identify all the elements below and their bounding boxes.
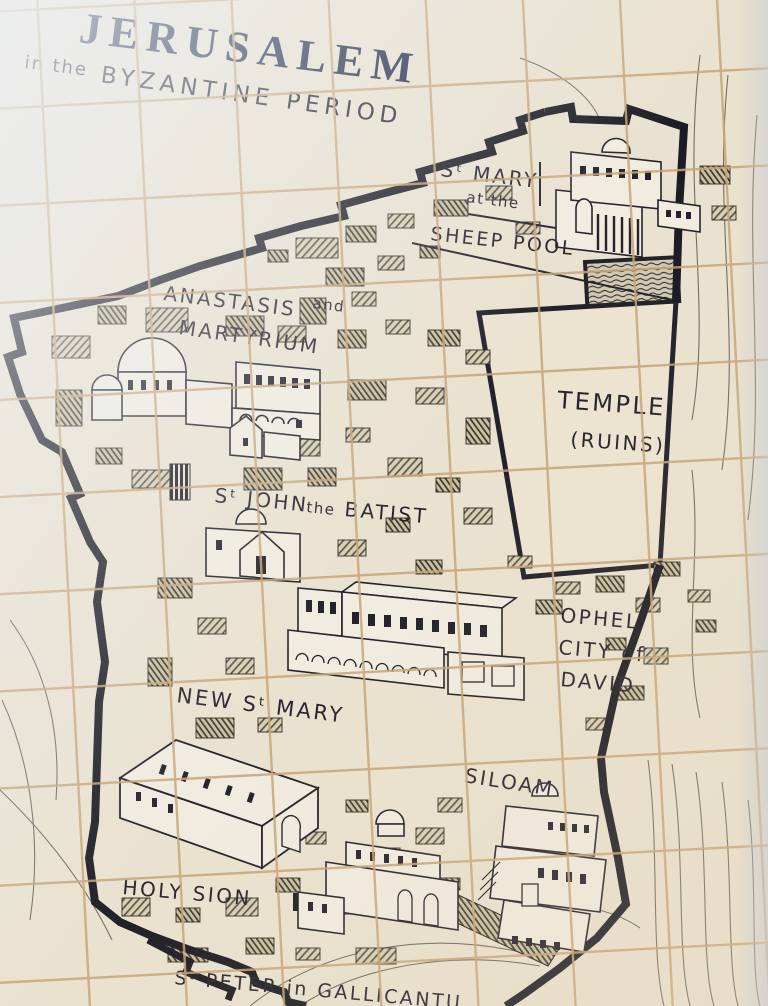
- label-st-john-the: the: [306, 498, 337, 519]
- dark-grill-block: [170, 464, 190, 500]
- tiled-map-mural-photo: Sᵗ MARY at the SHEEP POOL ANASTASIS and …: [0, 0, 768, 1006]
- byzantine-jerusalem-map: Sᵗ MARY at the SHEEP POOL ANASTASIS and …: [0, 0, 768, 1006]
